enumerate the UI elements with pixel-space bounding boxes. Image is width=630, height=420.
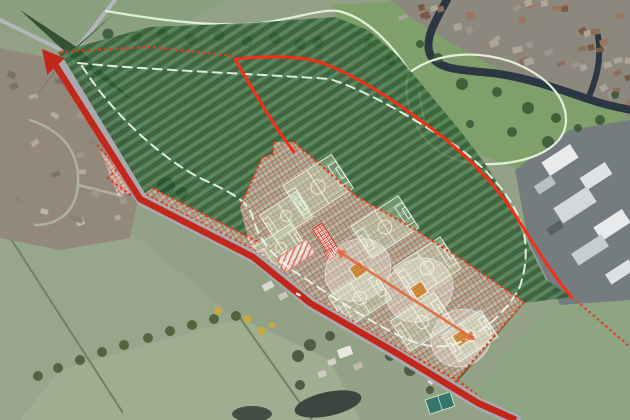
house [561, 6, 568, 12]
tree [466, 120, 474, 128]
tree [292, 350, 304, 362]
autumn-tree [269, 322, 275, 328]
autumn-tree [258, 327, 266, 335]
tree [522, 102, 534, 114]
tree [53, 363, 63, 373]
house [418, 4, 425, 11]
house [77, 153, 84, 158]
tree [97, 347, 107, 357]
tree [426, 386, 434, 394]
tree [295, 380, 305, 390]
tree [165, 326, 175, 336]
autumn-tree [214, 307, 222, 315]
tree [119, 340, 129, 350]
tree [507, 127, 517, 137]
tree [231, 311, 241, 321]
aerial-masterplan-svg [0, 0, 630, 420]
tree [187, 320, 197, 330]
tree [325, 331, 335, 341]
house [552, 6, 561, 11]
tree [143, 333, 153, 343]
site-plan-map [0, 0, 630, 420]
house [32, 147, 39, 153]
tree [209, 314, 219, 324]
tree [595, 115, 605, 125]
tree [456, 78, 468, 90]
house [540, 0, 548, 7]
tree [75, 355, 85, 365]
house [77, 169, 86, 174]
tree [33, 371, 43, 381]
tree [416, 40, 424, 48]
house [596, 47, 604, 52]
tree [574, 124, 582, 132]
tree [492, 87, 502, 97]
house [590, 29, 600, 36]
autumn-tree [243, 315, 251, 323]
house [119, 197, 127, 205]
house [526, 42, 534, 49]
tree [551, 113, 561, 123]
tree [304, 339, 316, 351]
tree [611, 91, 619, 99]
